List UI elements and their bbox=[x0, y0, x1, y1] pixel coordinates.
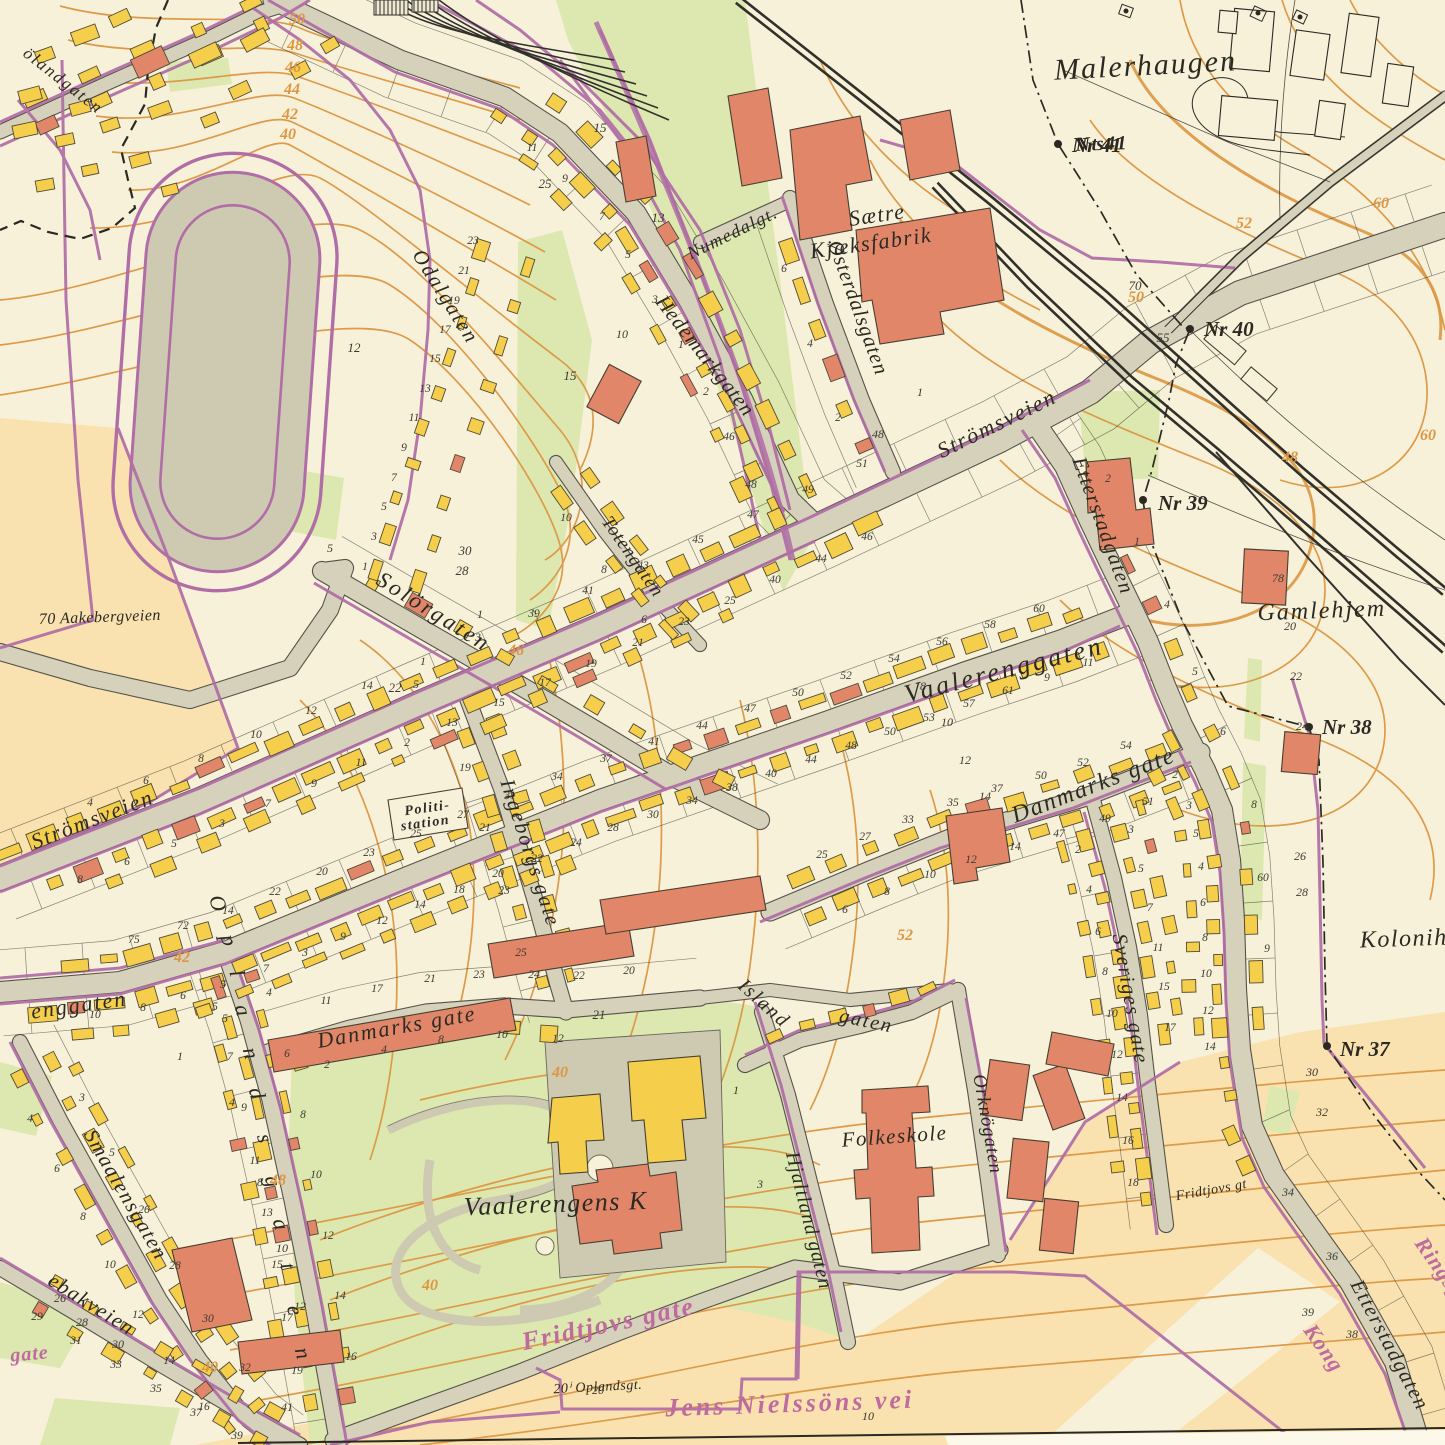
svg-text:58: 58 bbox=[984, 619, 996, 631]
svg-text:23: 23 bbox=[363, 847, 375, 859]
svg-text:25: 25 bbox=[816, 849, 828, 861]
svg-text:5: 5 bbox=[1138, 863, 1144, 875]
svg-text:15: 15 bbox=[564, 368, 578, 383]
svg-text:12: 12 bbox=[965, 854, 977, 866]
svg-text:50: 50 bbox=[1128, 289, 1144, 306]
svg-text:47: 47 bbox=[1053, 828, 1066, 840]
svg-text:3: 3 bbox=[1127, 824, 1134, 836]
svg-text:14: 14 bbox=[163, 1355, 175, 1367]
svg-text:6: 6 bbox=[54, 1163, 60, 1175]
svg-text:28: 28 bbox=[607, 822, 619, 834]
svg-text:55: 55 bbox=[1157, 330, 1171, 345]
svg-text:17: 17 bbox=[1164, 1022, 1177, 1034]
svg-text:44: 44 bbox=[696, 720, 708, 732]
svg-text:gate: gate bbox=[8, 1341, 49, 1366]
svg-text:5: 5 bbox=[212, 1001, 218, 1013]
svg-text:26: 26 bbox=[1294, 849, 1306, 863]
svg-text:48: 48 bbox=[872, 427, 884, 441]
svg-text:6: 6 bbox=[124, 856, 130, 868]
svg-text:6: 6 bbox=[1095, 926, 1101, 938]
svg-text:10: 10 bbox=[1106, 1008, 1118, 1020]
svg-text:54: 54 bbox=[888, 653, 900, 665]
svg-text:13: 13 bbox=[261, 1207, 273, 1219]
svg-text:12: 12 bbox=[348, 340, 362, 355]
svg-text:21: 21 bbox=[632, 637, 644, 649]
svg-text:20: 20 bbox=[623, 965, 635, 977]
svg-text:Nr 38: Nr 38 bbox=[1321, 715, 1372, 739]
svg-text:11: 11 bbox=[250, 1155, 261, 1167]
svg-text:38: 38 bbox=[1345, 1327, 1358, 1341]
svg-text:52: 52 bbox=[1236, 215, 1252, 232]
svg-text:12: 12 bbox=[1111, 1049, 1123, 1061]
svg-text:2: 2 bbox=[324, 1059, 330, 1071]
svg-text:28: 28 bbox=[76, 1315, 88, 1329]
svg-text:11: 11 bbox=[1153, 942, 1164, 954]
svg-text:21: 21 bbox=[479, 822, 491, 834]
svg-text:1: 1 bbox=[733, 1083, 739, 1097]
svg-text:6: 6 bbox=[180, 990, 186, 1002]
svg-text:4: 4 bbox=[1164, 599, 1170, 611]
svg-text:2: 2 bbox=[1172, 769, 1178, 781]
svg-text:14: 14 bbox=[414, 899, 426, 911]
svg-text:4: 4 bbox=[266, 987, 272, 999]
svg-text:30: 30 bbox=[1305, 1065, 1318, 1079]
svg-text:37: 37 bbox=[189, 1407, 203, 1419]
svg-text:15: 15 bbox=[1158, 981, 1170, 993]
svg-text:60: 60 bbox=[1420, 427, 1436, 444]
svg-text:19: 19 bbox=[459, 762, 471, 774]
svg-text:2: 2 bbox=[1075, 844, 1081, 856]
svg-text:11: 11 bbox=[321, 995, 332, 1007]
svg-text:20: 20 bbox=[492, 868, 504, 880]
svg-text:28: 28 bbox=[1296, 885, 1308, 899]
svg-text:17: 17 bbox=[371, 983, 384, 995]
svg-text:12: 12 bbox=[552, 1033, 564, 1045]
svg-text:35: 35 bbox=[149, 1383, 162, 1395]
svg-text:23: 23 bbox=[678, 616, 690, 628]
svg-text:15: 15 bbox=[493, 697, 505, 709]
svg-text:39: 39 bbox=[1301, 1305, 1314, 1319]
svg-text:41: 41 bbox=[648, 736, 660, 748]
svg-text:48: 48 bbox=[269, 1172, 286, 1189]
svg-text:Kolonih: Kolonih bbox=[1358, 924, 1445, 953]
svg-text:8: 8 bbox=[198, 753, 204, 765]
svg-text:34: 34 bbox=[685, 795, 698, 807]
svg-text:52: 52 bbox=[897, 927, 913, 944]
svg-text:19: 19 bbox=[291, 1365, 303, 1377]
svg-text:3: 3 bbox=[301, 947, 308, 959]
svg-text:20: 20 bbox=[316, 866, 328, 878]
svg-text:21: 21 bbox=[458, 265, 470, 277]
svg-text:14: 14 bbox=[1009, 841, 1021, 853]
svg-text:5: 5 bbox=[327, 541, 333, 555]
svg-text:24: 24 bbox=[528, 969, 540, 981]
svg-text:5: 5 bbox=[222, 1011, 228, 1025]
svg-text:3: 3 bbox=[78, 1092, 85, 1104]
svg-text:8: 8 bbox=[884, 886, 890, 898]
svg-text:6: 6 bbox=[781, 263, 787, 275]
svg-text:2: 2 bbox=[404, 737, 410, 749]
svg-text:46: 46 bbox=[861, 531, 873, 543]
svg-text:25: 25 bbox=[539, 176, 553, 191]
svg-text:12: 12 bbox=[959, 753, 971, 767]
svg-text:33: 33 bbox=[109, 1359, 122, 1371]
svg-text:34: 34 bbox=[550, 771, 563, 783]
svg-text:9: 9 bbox=[401, 442, 407, 454]
svg-text:40: 40 bbox=[201, 1359, 218, 1376]
svg-text:39: 39 bbox=[230, 1430, 243, 1442]
svg-text:10: 10 bbox=[104, 1259, 116, 1271]
svg-text:3: 3 bbox=[756, 1177, 763, 1191]
svg-text:45: 45 bbox=[692, 534, 704, 546]
svg-text:22: 22 bbox=[269, 886, 281, 898]
svg-text:32: 32 bbox=[1315, 1105, 1328, 1119]
svg-text:Nr 41: Nr 41 bbox=[1071, 133, 1122, 157]
svg-text:21: 21 bbox=[593, 1007, 606, 1022]
svg-text:9: 9 bbox=[1264, 943, 1270, 955]
svg-text:12: 12 bbox=[1202, 1005, 1214, 1017]
svg-text:8: 8 bbox=[77, 874, 83, 886]
svg-text:16: 16 bbox=[1122, 1135, 1134, 1147]
svg-text:5: 5 bbox=[1193, 828, 1199, 840]
svg-text:37: 37 bbox=[599, 753, 613, 765]
svg-text:48: 48 bbox=[845, 740, 857, 752]
svg-text:60: 60 bbox=[1257, 872, 1269, 884]
svg-text:36: 36 bbox=[1325, 1249, 1338, 1263]
svg-text:6: 6 bbox=[641, 614, 647, 626]
svg-text:46: 46 bbox=[507, 642, 524, 659]
svg-text:8: 8 bbox=[1251, 799, 1257, 811]
svg-text:29: 29 bbox=[31, 1311, 43, 1323]
svg-text:10: 10 bbox=[250, 729, 262, 741]
svg-text:1: 1 bbox=[420, 656, 426, 668]
svg-text:22: 22 bbox=[1290, 669, 1302, 683]
svg-text:40: 40 bbox=[551, 1064, 568, 1081]
svg-text:1: 1 bbox=[362, 561, 368, 573]
svg-text:14: 14 bbox=[334, 1290, 346, 1302]
svg-text:24: 24 bbox=[570, 837, 582, 849]
svg-text:Nr 40: Nr 40 bbox=[1203, 317, 1254, 341]
svg-text:12: 12 bbox=[376, 915, 388, 927]
svg-text:8: 8 bbox=[1202, 932, 1208, 944]
svg-text:61: 61 bbox=[1002, 685, 1014, 697]
svg-text:25: 25 bbox=[724, 595, 736, 607]
svg-text:51: 51 bbox=[856, 458, 868, 470]
svg-text:40: 40 bbox=[765, 768, 777, 780]
svg-text:4: 4 bbox=[1198, 861, 1204, 873]
svg-text:23: 23 bbox=[473, 969, 485, 981]
svg-text:33: 33 bbox=[901, 814, 914, 826]
svg-text:41: 41 bbox=[582, 585, 594, 597]
svg-text:40: 40 bbox=[279, 126, 296, 143]
svg-text:6: 6 bbox=[284, 1048, 290, 1060]
svg-text:1: 1 bbox=[1134, 536, 1140, 548]
svg-text:Nr 39: Nr 39 bbox=[1157, 491, 1208, 515]
svg-text:10: 10 bbox=[560, 512, 572, 524]
svg-text:16: 16 bbox=[345, 1351, 357, 1363]
svg-text:23: 23 bbox=[467, 235, 479, 247]
svg-text:38: 38 bbox=[725, 782, 738, 794]
svg-text:10: 10 bbox=[496, 1029, 508, 1041]
svg-text:44: 44 bbox=[815, 553, 827, 565]
svg-text:9: 9 bbox=[340, 931, 346, 943]
svg-text:14: 14 bbox=[1116, 1092, 1128, 1104]
svg-text:13: 13 bbox=[446, 717, 458, 729]
svg-text:8: 8 bbox=[1102, 966, 1108, 978]
svg-text:12: 12 bbox=[322, 1230, 334, 1242]
svg-text:37: 37 bbox=[990, 783, 1004, 795]
svg-text:51: 51 bbox=[1142, 796, 1154, 808]
svg-text:48: 48 bbox=[1281, 449, 1298, 466]
svg-text:3: 3 bbox=[1185, 800, 1192, 812]
svg-text:48: 48 bbox=[745, 479, 757, 491]
svg-text:4: 4 bbox=[381, 1044, 387, 1056]
svg-text:54: 54 bbox=[1120, 740, 1132, 752]
svg-text:13: 13 bbox=[419, 383, 431, 395]
svg-text:10: 10 bbox=[941, 715, 953, 729]
svg-text:31: 31 bbox=[69, 1335, 82, 1347]
svg-text:6: 6 bbox=[1220, 726, 1226, 738]
svg-text:21: 21 bbox=[424, 973, 436, 985]
svg-text:30: 30 bbox=[201, 1313, 214, 1325]
svg-text:2: 2 bbox=[835, 412, 841, 424]
svg-text:4: 4 bbox=[27, 1113, 33, 1125]
svg-text:8: 8 bbox=[601, 564, 607, 576]
svg-text:9: 9 bbox=[241, 1102, 247, 1114]
svg-text:8: 8 bbox=[438, 1034, 444, 1046]
svg-text:3: 3 bbox=[218, 818, 225, 830]
svg-text:22: 22 bbox=[573, 970, 585, 982]
svg-text:8: 8 bbox=[300, 1109, 306, 1121]
svg-text:42: 42 bbox=[173, 949, 190, 966]
svg-text:11: 11 bbox=[527, 142, 538, 154]
svg-text:23: 23 bbox=[498, 885, 510, 897]
svg-text:50: 50 bbox=[884, 726, 896, 738]
svg-text:10: 10 bbox=[1200, 968, 1212, 980]
svg-text:78: 78 bbox=[1272, 571, 1284, 585]
svg-text:44: 44 bbox=[805, 754, 817, 766]
svg-text:5: 5 bbox=[220, 979, 226, 991]
svg-text:15: 15 bbox=[594, 120, 608, 135]
svg-text:25: 25 bbox=[515, 947, 527, 959]
svg-text:3: 3 bbox=[370, 531, 377, 543]
svg-text:48: 48 bbox=[286, 37, 303, 54]
svg-text:27: 27 bbox=[457, 809, 470, 821]
svg-text:4: 4 bbox=[807, 338, 813, 350]
svg-text:1: 1 bbox=[917, 385, 923, 399]
svg-text:47: 47 bbox=[747, 509, 760, 521]
svg-text:60: 60 bbox=[1033, 603, 1045, 615]
svg-text:6: 6 bbox=[1200, 897, 1206, 909]
svg-text:5: 5 bbox=[413, 677, 419, 691]
svg-text:42: 42 bbox=[281, 106, 298, 123]
svg-text:Gamlehjem: Gamlehjem bbox=[1257, 596, 1386, 626]
svg-text:14: 14 bbox=[979, 789, 991, 803]
svg-text:49: 49 bbox=[1099, 813, 1111, 825]
svg-text:52: 52 bbox=[840, 670, 852, 682]
svg-text:75: 75 bbox=[128, 934, 140, 946]
svg-text:9: 9 bbox=[311, 778, 317, 790]
svg-text:9: 9 bbox=[562, 173, 568, 185]
svg-text:53: 53 bbox=[923, 712, 935, 724]
svg-text:11: 11 bbox=[356, 757, 367, 769]
svg-text:30: 30 bbox=[111, 1337, 124, 1351]
svg-text:2: 2 bbox=[1105, 473, 1111, 485]
svg-text:41: 41 bbox=[281, 1400, 293, 1414]
svg-text:Nr 37: Nr 37 bbox=[1339, 1037, 1391, 1061]
svg-text:5: 5 bbox=[1192, 666, 1198, 678]
svg-text:14: 14 bbox=[361, 680, 373, 692]
svg-text:39: 39 bbox=[527, 608, 540, 620]
svg-text:2: 2 bbox=[703, 386, 709, 398]
svg-text:32: 32 bbox=[238, 1362, 251, 1374]
svg-text:1: 1 bbox=[477, 607, 483, 621]
svg-text:60: 60 bbox=[1373, 195, 1389, 212]
svg-text:50: 50 bbox=[792, 687, 804, 699]
svg-text:46: 46 bbox=[284, 59, 301, 76]
svg-text:10: 10 bbox=[924, 869, 936, 881]
svg-text:50: 50 bbox=[289, 11, 305, 28]
svg-text:15: 15 bbox=[429, 353, 441, 365]
svg-text:57: 57 bbox=[963, 698, 976, 710]
svg-text:4: 4 bbox=[1086, 884, 1092, 896]
svg-text:5: 5 bbox=[171, 838, 177, 850]
svg-text:11: 11 bbox=[409, 412, 420, 424]
svg-text:27: 27 bbox=[859, 831, 872, 843]
svg-text:56: 56 bbox=[936, 636, 948, 648]
svg-text:35: 35 bbox=[946, 797, 959, 809]
svg-text:17: 17 bbox=[439, 324, 452, 336]
svg-text:50: 50 bbox=[1035, 770, 1047, 782]
svg-text:18: 18 bbox=[1127, 1177, 1139, 1189]
svg-text:46: 46 bbox=[723, 431, 735, 443]
svg-text:22: 22 bbox=[389, 680, 403, 695]
svg-text:47: 47 bbox=[744, 703, 757, 715]
svg-text:49: 49 bbox=[802, 484, 814, 496]
svg-text:28: 28 bbox=[456, 563, 470, 578]
svg-text:10: 10 bbox=[310, 1169, 322, 1181]
svg-text:19: 19 bbox=[585, 658, 597, 670]
svg-text:4: 4 bbox=[229, 1095, 235, 1109]
svg-text:12: 12 bbox=[305, 705, 317, 717]
svg-text:14: 14 bbox=[1204, 1041, 1216, 1053]
svg-text:6: 6 bbox=[842, 904, 848, 916]
svg-text:10: 10 bbox=[276, 1241, 288, 1255]
svg-text:5: 5 bbox=[381, 501, 387, 513]
svg-text:30: 30 bbox=[458, 543, 473, 558]
svg-text:18: 18 bbox=[453, 884, 465, 896]
svg-text:8: 8 bbox=[80, 1211, 86, 1223]
svg-text:24: 24 bbox=[1296, 719, 1308, 733]
svg-text:40: 40 bbox=[769, 574, 781, 586]
svg-text:8: 8 bbox=[140, 1002, 146, 1014]
svg-text:1: 1 bbox=[177, 1049, 183, 1063]
svg-text:17: 17 bbox=[539, 677, 552, 689]
svg-text:13: 13 bbox=[652, 210, 666, 225]
svg-text:34: 34 bbox=[1281, 1185, 1294, 1199]
svg-text:52: 52 bbox=[1077, 757, 1089, 769]
svg-text:40: 40 bbox=[421, 1277, 438, 1294]
svg-text:28: 28 bbox=[169, 1260, 181, 1272]
svg-text:44: 44 bbox=[283, 81, 300, 98]
svg-text:5: 5 bbox=[625, 249, 631, 261]
svg-text:30: 30 bbox=[646, 809, 659, 821]
svg-text:72: 72 bbox=[177, 920, 189, 932]
svg-text:10: 10 bbox=[616, 327, 628, 341]
